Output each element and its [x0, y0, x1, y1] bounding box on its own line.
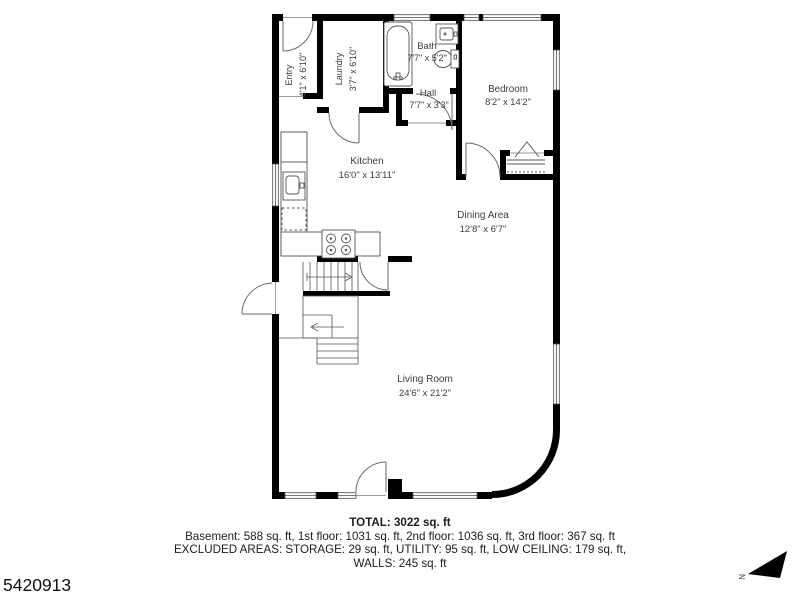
window-bath-top [394, 15, 430, 21]
plan-id: 5420913 [3, 575, 71, 596]
room-label-laundry: Laundry 3'7" x 6'10" [334, 47, 358, 91]
stove-fixture [322, 230, 355, 258]
door-bedroom [466, 143, 500, 177]
window-living-right [554, 344, 560, 404]
laundry-name: Laundry [334, 52, 344, 85]
window-bedroom-top-2 [483, 15, 541, 21]
stairs-down [279, 296, 358, 364]
bedroom-dims: 8'2" x 14'2" [485, 97, 531, 107]
window-bedroom-top-1 [464, 15, 479, 21]
room-label-hall: Hall 7'7" x 3'3" [409, 88, 448, 110]
bath-dims: 7'7" x 5'2" [407, 53, 446, 63]
window-living-bottom-3 [413, 493, 477, 499]
window-living-bottom-1 [285, 493, 316, 499]
summary-excluded: EXCLUDED AREAS: STORAGE: 29 sq. ft, UTIL… [0, 543, 800, 557]
dining-dims: 12'8" x 6'7" [460, 224, 507, 235]
laundry-dims: 3'7" x 6'10" [348, 47, 358, 91]
door-living-left-exterior [242, 283, 272, 314]
door-stairwell [360, 262, 388, 290]
north-arrow-label: N [737, 574, 746, 580]
room-label-dining: Dining Area 12'8" x 6'7" [457, 210, 509, 235]
stairs-up [303, 262, 358, 291]
summary-total: TOTAL: 3022 sq. ft [0, 516, 800, 530]
summary-walls: WALLS: 245 sq. ft [0, 557, 800, 571]
room-label-bedroom: Bedroom 8'2" x 14'2" [485, 84, 531, 107]
door-laundry [329, 113, 359, 143]
window-living-bottom-2 [338, 493, 356, 499]
floor-plan-canvas: Entry 4'1" x 6'10" Laundry 3'7" x 6'10" … [0, 0, 800, 600]
dishwasher-fixture [282, 208, 306, 230]
hanger-icon [515, 142, 539, 157]
room-label-living: Living Room 24'6" x 21'2" [397, 374, 453, 399]
window-kitchen-left [273, 164, 279, 206]
kitchen-name: Kitchen [350, 156, 383, 167]
door-entry-front [283, 21, 313, 51]
bath-name: Bath [417, 41, 437, 52]
dining-name: Dining Area [457, 210, 509, 221]
hall-dims: 7'7" x 3'3" [409, 100, 448, 110]
staircase [279, 262, 358, 364]
bath-sink-fixture [436, 24, 458, 44]
living-name: Living Room [397, 374, 453, 385]
bedroom-name: Bedroom [488, 84, 528, 95]
floor-plan-page: Entry 4'1" x 6'10" Laundry 3'7" x 6'10" … [0, 0, 800, 600]
fridge-fixture [281, 132, 307, 162]
summary-floors: Basement: 588 sq. ft, 1st floor: 1031 sq… [0, 530, 800, 544]
window-bedroom-right [554, 50, 560, 90]
room-label-entry: Entry 4'1" x 6'10" [284, 53, 308, 97]
hall-name: Hall [420, 88, 436, 99]
room-label-kitchen: Kitchen 16'0" x 13'11" [339, 156, 396, 181]
living-dims: 24'6" x 21'2" [399, 388, 451, 399]
door-living-bottom-exterior [356, 462, 386, 492]
closet-fixture [507, 142, 545, 172]
entry-name: Entry [284, 64, 294, 86]
curved-corner-wall [492, 430, 560, 498]
area-summary: TOTAL: 3022 sq. ft Basement: 588 sq. ft,… [0, 516, 800, 570]
kitchen-sink-fixture [283, 172, 305, 200]
entry-dims: 4'1" x 6'10" [298, 53, 308, 97]
kitchen-dims: 16'0" x 13'11" [339, 170, 396, 181]
